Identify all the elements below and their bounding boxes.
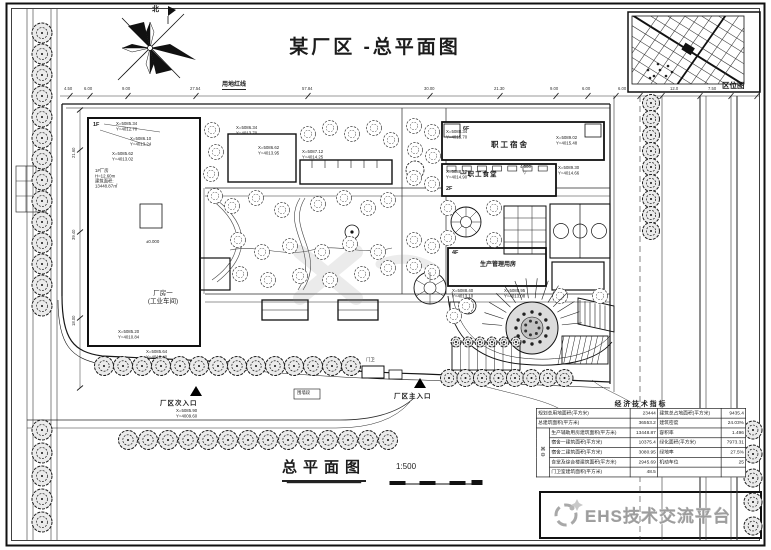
table-cell: 其 中 <box>536 428 549 477</box>
table-cell <box>721 467 745 477</box>
table-cell: 生产辅助用房建筑面积(平方米) <box>550 428 631 438</box>
table-cell <box>658 467 722 477</box>
coord-annotation: X=5088.95 Y=4013.08 <box>504 288 525 298</box>
coord-annotation: X=5085.34 Y=4012.70 <box>116 121 137 131</box>
coord-annotation: X=5085.64 Y=4010.40 <box>146 349 167 359</box>
table-cell: 机动车位 <box>658 457 722 467</box>
table-cell: 建筑总占地面积(平方米) <box>658 408 722 418</box>
table-cell: 27.5% <box>721 448 745 458</box>
bottom-street <box>27 398 414 428</box>
coord-annotation: X=5085.62 Y=4013.02 <box>112 151 133 161</box>
table-cell: 3080.95 <box>630 448 657 458</box>
redline-label: 用地红线 <box>222 79 246 90</box>
table-cell: 9435.4 <box>721 408 745 418</box>
dimension-label: 21.30 <box>494 87 505 91</box>
coord-annotation: ±0.000 <box>146 239 159 244</box>
ehs-logo-text: EHS技术交流平台 <box>585 502 731 527</box>
secondary-entrance-label: 厂区次入口 <box>160 397 198 407</box>
table-cell: 门卫室建筑面积(平方米) <box>550 467 631 477</box>
coord-annotation: ▽ <box>523 170 526 175</box>
indicator-table-title: 经济技术指标 <box>536 398 746 408</box>
coord-annotation: X=5085.20 Y=4010.84 <box>118 329 139 339</box>
table-cell: 2945.69 <box>630 457 657 467</box>
north-arrow-label: 北 <box>152 4 159 14</box>
coord-annotation: 门卫 <box>366 357 375 362</box>
coord-annotation: 围墙段 <box>297 390 310 395</box>
coord-annotation: 4.500 <box>520 164 531 169</box>
dimension-label: 39.40 <box>72 229 76 240</box>
dimension-label: 18.00 <box>72 315 76 326</box>
north-compass-icon <box>118 6 196 80</box>
factory-building-label: 厂房一 (工业车间) <box>126 290 200 307</box>
table-cell: 宿舍一建筑面积(平方米) <box>550 438 631 448</box>
table-cell: 宿舍二建筑面积(平方米) <box>550 448 631 458</box>
dimension-label: 6.00 <box>582 87 590 91</box>
table-cell: 总建筑面积(平方米) <box>536 418 630 428</box>
site-plan-sheet: 某厂区 -总平面图 北 区位图 用地红线 厂房一 (工业车间) 职工宿舍 一职工… <box>0 0 771 550</box>
footer-plan-title: 总平面图 <box>282 456 366 482</box>
mgmt-building-label: 生产管理用房 <box>460 259 536 268</box>
table-cell: 建筑密度 <box>658 418 722 428</box>
footer-scale: 1:500 <box>396 462 416 471</box>
dorm-floor-tag: 6F <box>463 126 469 132</box>
dimension-label: 6.00 <box>84 87 92 91</box>
coord-annotation: X=5088.40 Y=4013.10 <box>452 288 473 298</box>
canteen-floor-tag: 2F <box>446 186 452 192</box>
coord-annotation: 1#厂房 H=12.60m 建筑面积: 13448.87㎡ <box>95 168 118 189</box>
table-cell: 1.496 <box>721 428 745 438</box>
table-cell: 24.03% <box>721 418 745 428</box>
coord-annotation: X=5085.90 Y=4009.60 <box>176 408 197 418</box>
dimension-label: 57.84 <box>302 87 313 91</box>
coord-annotation: X=5089.30 Y=4014.66 <box>558 165 579 175</box>
dimension-label: 27.54 <box>190 87 201 91</box>
table-cell: 食堂及综合楼建筑面积(平方米) <box>550 457 631 467</box>
page-title: 某厂区 -总平面图 <box>225 32 525 59</box>
dimension-label: 9.00 <box>122 87 130 91</box>
coord-annotation: X=5086.62 Y=4013.95 <box>258 145 279 155</box>
table-cell: 容积率 <box>658 428 722 438</box>
factory-floor-tag: 1F <box>93 122 99 128</box>
table-cell: 绿化面积(平方米) <box>658 438 722 448</box>
dorm-building-label: 职工宿舍 <box>468 139 552 150</box>
coord-annotation: X=5086.34 Y=4013.70 <box>236 125 257 135</box>
table-cell: 绿地率 <box>658 448 722 458</box>
coord-annotation: X=5087.12 Y=4014.25 <box>302 149 323 159</box>
mgmt-floor-tag: 4F <box>452 250 458 256</box>
basketball-court <box>550 204 610 258</box>
dimension-label: 7.50 <box>708 87 716 91</box>
dimension-label: 4.50 <box>64 87 72 91</box>
dimension-label: 21.60 <box>72 147 76 158</box>
table-cell: 10375.4 <box>630 438 657 448</box>
canteen-building-label: 一职工食堂 <box>460 168 498 178</box>
main-entrance-label: 厂区主入口 <box>394 390 432 400</box>
table-cell: 7973.31 <box>721 438 745 448</box>
table-cell: 48.5 <box>630 467 657 477</box>
dimension-label: 12.0 <box>670 87 678 91</box>
location-map-label: 区位图 <box>722 80 745 91</box>
dimension-label: 6.00 <box>618 87 626 91</box>
scale-bar <box>390 481 482 485</box>
table-cell: 13448.87 <box>630 428 657 438</box>
table-cell: 25 <box>721 457 745 467</box>
dimension-label: 30.00 <box>424 87 435 91</box>
table-cell: 36553.2 <box>630 418 657 428</box>
dimension-label: 9.00 <box>550 87 558 91</box>
indicator-table: 规划总用地面积(平方米)23444建筑总占地面积(平方米)9435.4总建筑面积… <box>536 408 746 477</box>
table-cell: 规划总用地面积(平方米) <box>536 408 630 418</box>
table-cell: 23444 <box>630 408 657 418</box>
coord-annotation: X=5086.10 Y=4013.24 <box>130 136 151 146</box>
coord-annotation: X=5089.02 Y=4015.48 <box>556 135 577 145</box>
